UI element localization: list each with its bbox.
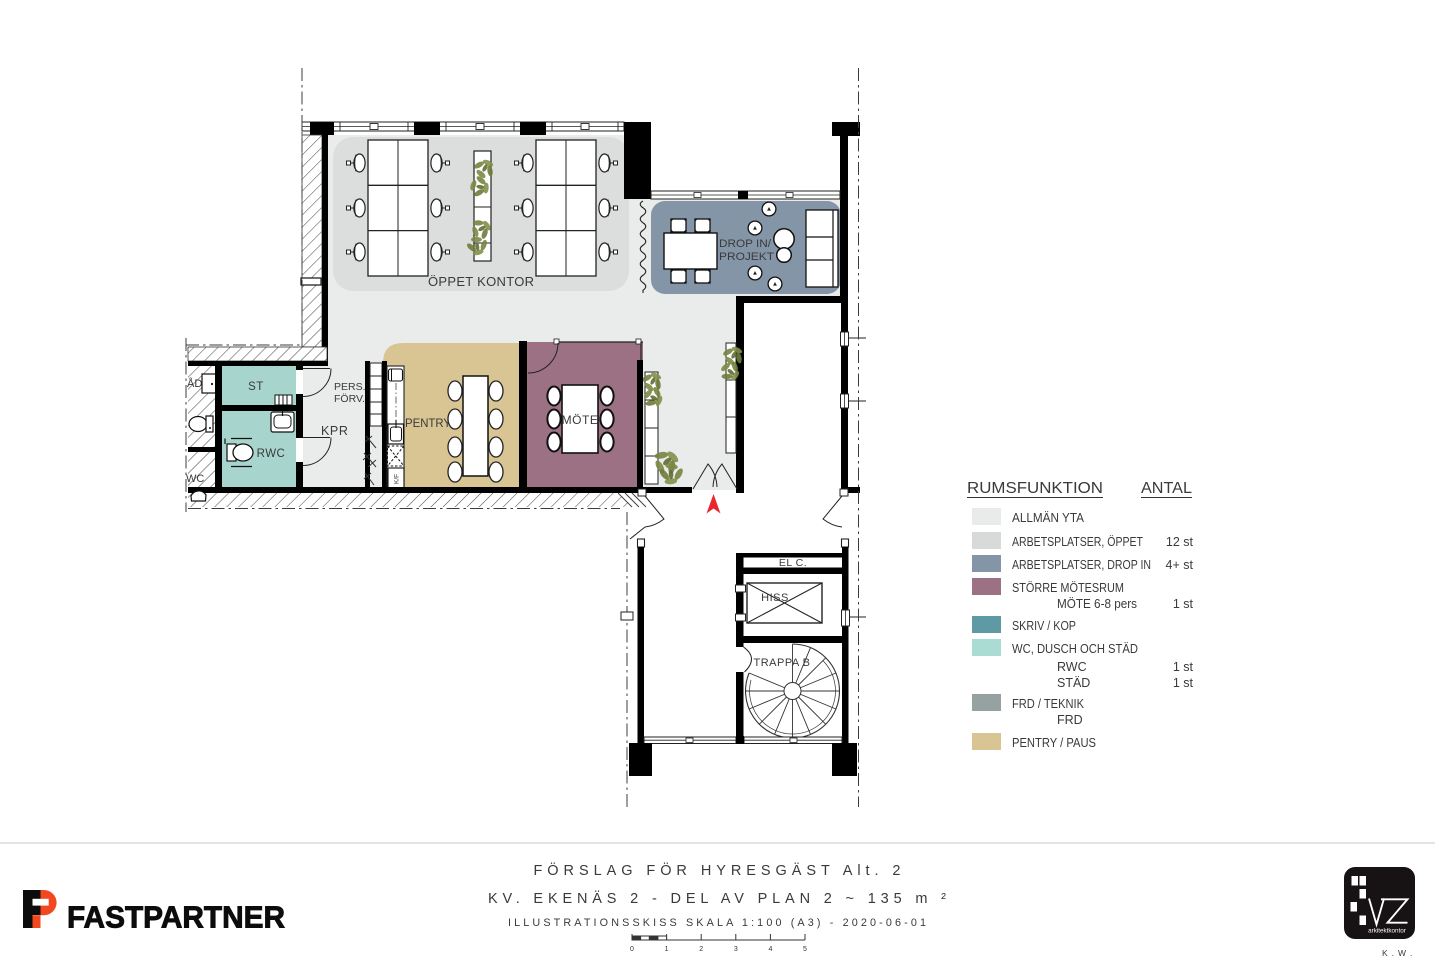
svg-text:1 st: 1 st [1173, 660, 1194, 674]
svg-text:4: 4 [768, 946, 772, 953]
svg-text:ARBETSPLATSER, ÖPPET: ARBETSPLATSER, ÖPPET [1012, 535, 1143, 549]
svg-text:5: 5 [803, 946, 807, 953]
svg-text:EL C.: EL C. [779, 557, 807, 569]
svg-text:KV. EKENÄS 2 - DEL AV PLAN 2 ~: KV. EKENÄS 2 - DEL AV PLAN 2 ~ 135 m ² [488, 890, 946, 907]
svg-text:RWC: RWC [257, 448, 286, 460]
svg-text:ALLMÄN YTA: ALLMÄN YTA [1012, 511, 1085, 525]
svg-text:1 st: 1 st [1173, 597, 1194, 611]
svg-text:WC: WC [186, 473, 204, 485]
svg-text:SKRIV / KOP: SKRIV / KOP [1012, 619, 1076, 633]
svg-text:KPR: KPR [321, 424, 349, 438]
svg-text:STÄD: STÄD [1057, 676, 1090, 690]
svg-text:PROJEKT: PROJEKT [719, 251, 774, 263]
svg-text:ÅD: ÅD [187, 377, 202, 390]
svg-text:12 st: 12 st [1166, 535, 1194, 549]
svg-text:0: 0 [630, 946, 634, 953]
svg-text:ILLUSTRATIONSSKISS SKALA 1:100: ILLUSTRATIONSSKISS SKALA 1:100 (A3) - 20… [508, 917, 926, 929]
svg-text:2: 2 [699, 946, 703, 953]
svg-text:K/F: K/F [394, 474, 401, 484]
svg-text:3: 3 [734, 946, 738, 953]
svg-text:RWC: RWC [1057, 660, 1087, 674]
svg-text:ÖPPET KONTOR: ÖPPET KONTOR [428, 274, 534, 289]
svg-text:FRD / TEKNIK: FRD / TEKNIK [1012, 697, 1085, 711]
svg-text:PERS.: PERS. [334, 381, 366, 393]
svg-text:FÖRSLAG FÖR HYRESGÄST Alt. 2: FÖRSLAG FÖR HYRESGÄST Alt. 2 [534, 861, 901, 879]
svg-text:FÖRV.: FÖRV. [334, 393, 365, 405]
svg-text:ARBETSPLATSER, DROP IN: ARBETSPLATSER, DROP IN [1012, 558, 1151, 572]
svg-text:arkitektkontor: arkitektkontor [1368, 928, 1406, 935]
svg-text:ST: ST [248, 381, 264, 393]
svg-text:DROP IN/: DROP IN/ [719, 238, 772, 250]
svg-text:ANTAL: ANTAL [1141, 480, 1192, 497]
svg-text:FRD: FRD [1057, 713, 1083, 727]
svg-text:4+ st: 4+ st [1166, 558, 1194, 572]
svg-text:STÖRRE MÖTESRUM: STÖRRE MÖTESRUM [1012, 581, 1124, 595]
svg-text:K . W .: K . W . [1382, 948, 1413, 958]
svg-text:MÖTE: MÖTE [562, 413, 599, 427]
svg-text:TRAPPA B: TRAPPA B [754, 657, 811, 669]
svg-text:PENTRY: PENTRY [405, 416, 451, 430]
svg-text:FASTPARTNER: FASTPARTNER [67, 901, 285, 935]
svg-text:1 st: 1 st [1173, 676, 1194, 690]
svg-text:HISS: HISS [761, 592, 789, 604]
svg-text:1: 1 [665, 946, 669, 953]
svg-text:WC, DUSCH OCH STÄD: WC, DUSCH OCH STÄD [1012, 642, 1138, 656]
svg-text:MÖTE 6-8 pers: MÖTE 6-8 pers [1057, 597, 1137, 611]
svg-text:PENTRY / PAUS: PENTRY / PAUS [1012, 736, 1096, 750]
svg-text:RUMSFUNKTION: RUMSFUNKTION [967, 480, 1103, 497]
